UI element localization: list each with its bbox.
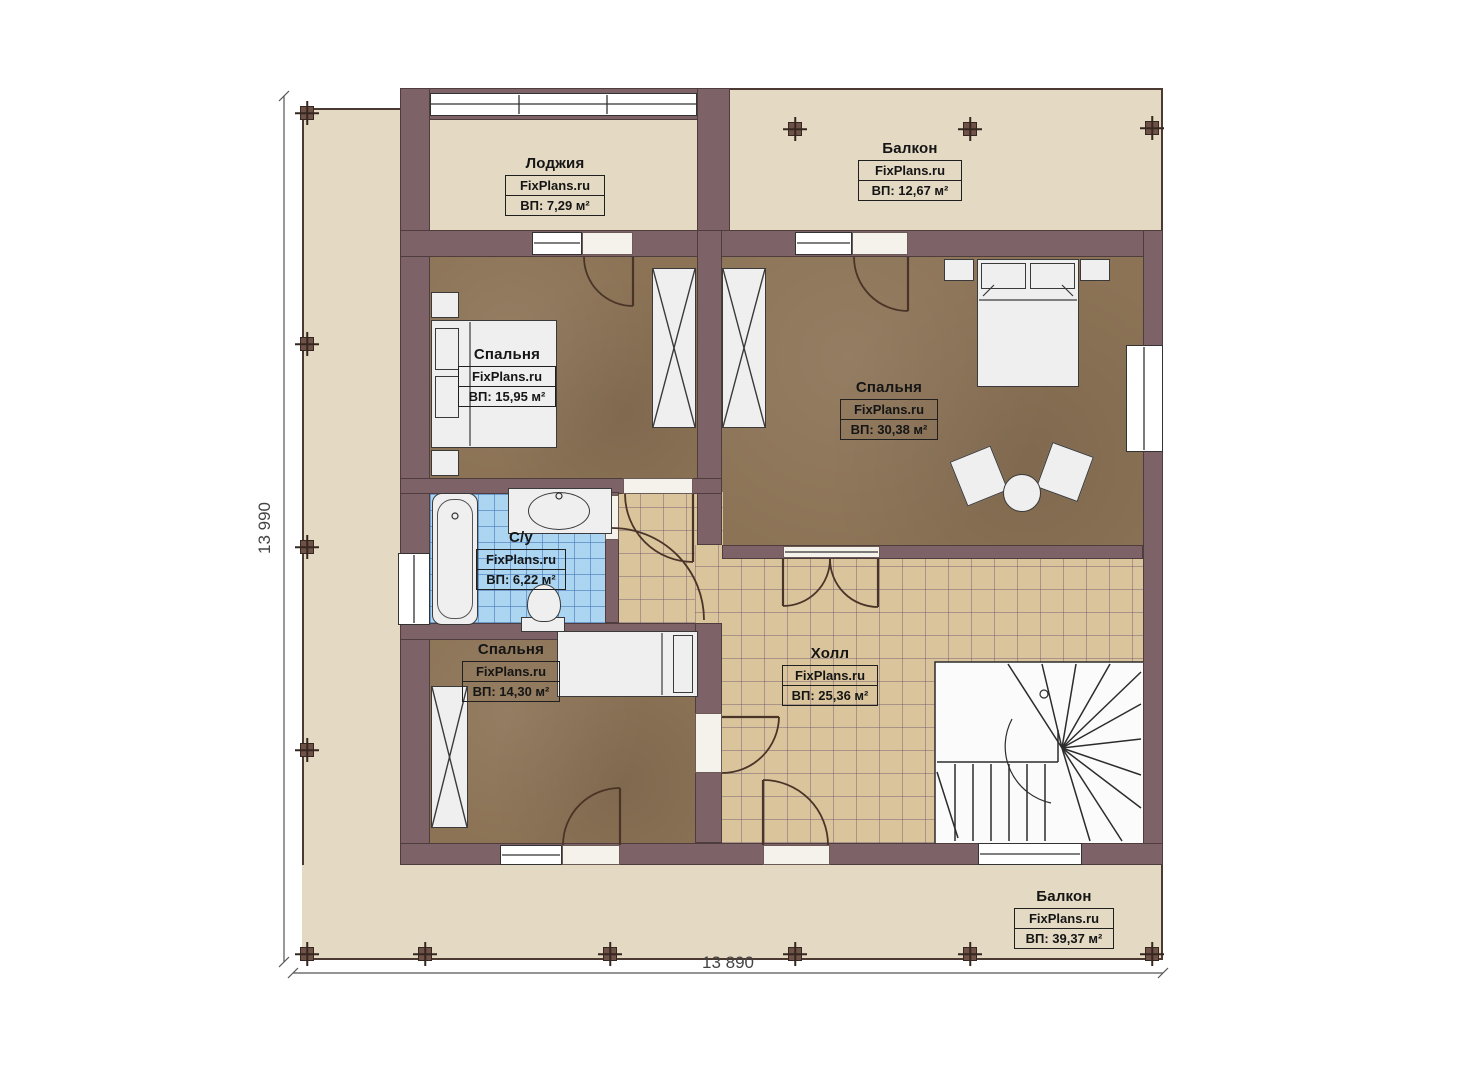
wall-house-right [1143,230,1163,865]
pillow [435,376,459,418]
watermark-fixplans: FixPlans.ru [841,400,937,419]
pillow [1030,263,1075,289]
room-info-box: FixPlans.ru ВП: 14,30 м² [462,661,560,702]
door-opening-bedroom3-hall [695,713,722,773]
room-label-bedroom-2: Спальня FixPlans.ru ВП: 30,38 м² [840,379,938,440]
room-name: Холл [782,645,878,662]
room-label-bedroom-3: Спальня FixPlans.ru ВП: 14,30 м² [462,641,560,702]
door-opening-bedroom1 [623,478,693,494]
room-name: Спальня [840,379,938,396]
wall-loggia-right [697,88,730,236]
door-opening-bedroom3-terrace [562,845,620,865]
terrace-post [788,122,802,136]
room-label-loggia: Лоджия FixPlans.ru ВП: 7,29 м² [505,155,605,216]
wall-house-left [400,88,430,865]
room-label-balcony-top: Балкон FixPlans.ru ВП: 12,67 м² [858,140,962,201]
room-name: Балкон [1014,888,1114,905]
window-bedroom3-bottom [500,845,562,865]
terrace-post [963,122,977,136]
pillow [435,328,459,370]
room-area: ВП: 25,36 м² [783,685,877,705]
room-info-box: FixPlans.ru ВП: 15,95 м² [458,366,556,407]
nightstand [1080,259,1110,281]
wardrobe-bedroom2 [722,268,766,428]
wall-house-top [697,230,1163,257]
watermark-fixplans: FixPlans.ru [859,161,961,180]
door-opening-bedroom2-double [783,546,880,558]
watermark-fixplans: FixPlans.ru [463,662,559,681]
watermark-fixplans: FixPlans.ru [459,367,555,386]
door-opening-hall-balcony [763,845,830,865]
terrace-post [300,743,314,757]
room-label-hall: Холл FixPlans.ru ВП: 25,36 м² [782,645,878,706]
terrace-post [300,106,314,120]
window-bedroom2-balcony [795,232,852,255]
room-info-box: FixPlans.ru ВП: 30,38 м² [840,399,938,440]
room-area: ВП: 14,30 м² [463,681,559,701]
terrace-post [963,947,977,961]
room-name: Лоджия [505,155,605,172]
watermark-fixplans: FixPlans.ru [506,176,604,195]
room-name: Спальня [462,641,560,658]
room-info-box: FixPlans.ru ВП: 7,29 м² [505,175,605,216]
door-opening-balcony-top [852,232,908,255]
bathtub-inner [437,499,473,619]
room-area: ВП: 39,37 м² [1015,928,1113,948]
coffee-table [1003,474,1041,512]
dimension-left-label: 13 990 [255,502,274,554]
room-name: Спальня [458,346,556,363]
room-area: ВП: 15,95 м² [459,386,555,406]
terrace-left-strip [302,108,400,960]
terrace-post [300,540,314,554]
nightstand [431,292,459,318]
nightstand [944,259,974,281]
window-bedroom2-right [1126,345,1163,452]
watermark-fixplans: FixPlans.ru [783,666,877,685]
room-name: Балкон [858,140,962,157]
room-label-bedroom-1: Спальня FixPlans.ru ВП: 15,95 м² [458,346,556,407]
room-info-box: FixPlans.ru ВП: 6,22 м² [476,549,566,590]
floor-plan: 13 990 13 890 Лоджия FixPlans.ru ВП: 7,2… [0,0,1473,1080]
pillow [673,635,693,693]
watermark-fixplans: FixPlans.ru [477,550,565,569]
wardrobe-bedroom1 [652,268,696,428]
wall-bedroom1-bedroom2 [697,230,722,545]
room-name: С/у [476,529,566,546]
room-area: ВП: 6,22 м² [477,569,565,589]
staircase-area [935,662,1143,843]
room-label-balcony-bottom: Балкон FixPlans.ru ВП: 39,37 м² [1014,888,1114,949]
terrace-post [300,947,314,961]
window-loggia-band [430,93,697,116]
window-loggia-bedroom1 [532,232,582,255]
wardrobe-bedroom3 [431,686,468,828]
terrace-post [603,947,617,961]
room-area: ВП: 7,29 м² [506,195,604,215]
room-area: ВП: 12,67 м² [859,180,961,200]
room-info-box: FixPlans.ru ВП: 25,36 м² [782,665,878,706]
room-label-bathroom: С/у FixPlans.ru ВП: 6,22 м² [476,529,566,590]
window-left-wall [398,553,430,625]
watermark-fixplans: FixPlans.ru [1015,909,1113,928]
room-info-box: FixPlans.ru ВП: 12,67 м² [858,160,962,201]
sink [528,492,590,530]
terrace-post [1145,947,1159,961]
terrace-post [1145,121,1159,135]
room-info-box: FixPlans.ru ВП: 39,37 м² [1014,908,1114,949]
window-stairs-bottom [978,843,1082,865]
room-area: ВП: 30,38 м² [841,419,937,439]
terrace-post [788,947,802,961]
door-opening-loggia [582,232,633,255]
nightstand [431,450,459,476]
terrace-post [300,337,314,351]
pillow [981,263,1026,289]
terrace-post [418,947,432,961]
